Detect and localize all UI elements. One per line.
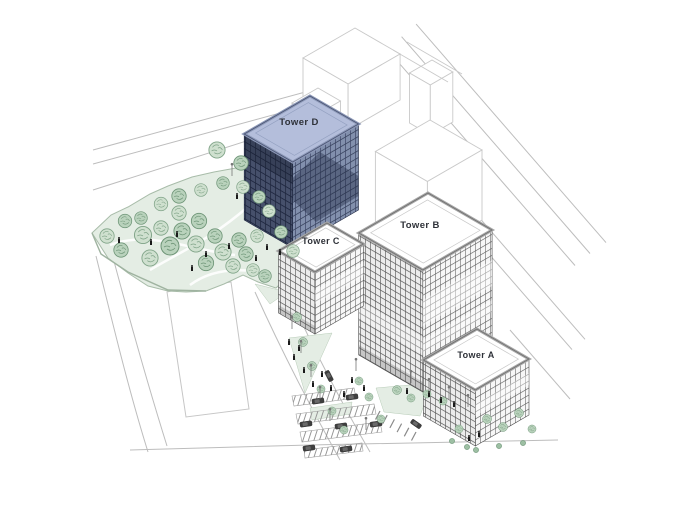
person — [351, 377, 353, 383]
tree — [209, 142, 225, 158]
car — [410, 419, 422, 429]
building-footprint-outline — [167, 276, 249, 417]
tree — [114, 243, 128, 257]
tower-c-label: Tower C — [302, 236, 340, 246]
tree — [259, 270, 272, 283]
tree — [172, 206, 186, 220]
tree — [287, 245, 300, 258]
tree — [142, 250, 158, 266]
bush — [520, 440, 525, 445]
tree — [100, 229, 114, 243]
tree — [455, 425, 463, 433]
person — [150, 239, 152, 245]
tree — [208, 229, 222, 243]
person — [293, 354, 295, 360]
bush — [496, 443, 501, 448]
tower-d: Tower D — [244, 96, 358, 248]
person — [321, 371, 323, 377]
site-plan-svg: Tower D Tower B Tower C Tower A — [0, 0, 696, 519]
person — [266, 244, 268, 250]
person — [406, 388, 408, 394]
person — [428, 391, 430, 397]
street-lamp — [355, 358, 358, 371]
site-plan-illustration: Tower D Tower B Tower C Tower A — [0, 0, 696, 519]
tree — [226, 259, 240, 273]
tree — [195, 184, 208, 197]
person — [363, 385, 365, 391]
tree — [217, 177, 230, 190]
tower-d-label: Tower D — [279, 117, 319, 128]
tree — [365, 393, 373, 401]
tree — [340, 426, 348, 434]
car — [324, 370, 333, 382]
person — [330, 385, 332, 391]
tree — [377, 415, 385, 423]
tree — [393, 386, 402, 395]
tree — [407, 394, 415, 402]
bush — [464, 444, 469, 449]
person — [298, 345, 300, 351]
person — [255, 255, 257, 261]
tree — [161, 237, 179, 255]
tree — [515, 409, 524, 418]
tree — [154, 197, 168, 211]
tree — [239, 247, 253, 261]
tree — [154, 221, 168, 235]
person — [468, 435, 470, 441]
tree — [483, 415, 492, 424]
tree — [253, 191, 266, 204]
tree — [134, 226, 151, 243]
tower-a-label: Tower A — [457, 350, 494, 360]
person — [228, 243, 230, 249]
person — [205, 251, 207, 257]
road-line — [96, 256, 148, 452]
person — [343, 391, 345, 397]
tree — [263, 205, 276, 218]
tree — [234, 156, 248, 170]
tree — [355, 377, 363, 385]
tree — [118, 214, 132, 228]
bush — [473, 447, 478, 452]
tree — [293, 313, 302, 322]
bush — [449, 438, 454, 443]
tree — [499, 423, 508, 432]
street-lamp — [291, 316, 294, 329]
tree — [232, 233, 246, 247]
person — [478, 431, 480, 437]
tree — [188, 236, 204, 252]
tower-b-label: Tower B — [400, 220, 440, 231]
tree — [135, 212, 148, 225]
tree — [237, 181, 250, 194]
tree — [328, 407, 336, 415]
tree — [251, 230, 264, 243]
person — [279, 249, 281, 255]
person — [176, 231, 178, 237]
tree — [317, 385, 325, 393]
tree — [172, 189, 186, 203]
tree — [191, 213, 206, 228]
tree — [299, 338, 308, 347]
tree — [198, 255, 213, 270]
tree — [275, 226, 288, 239]
person — [312, 381, 314, 387]
person — [440, 397, 442, 403]
person — [191, 265, 193, 271]
tree — [528, 425, 536, 433]
person — [288, 339, 290, 345]
person — [453, 401, 455, 407]
person — [118, 237, 120, 243]
person — [303, 367, 305, 373]
person — [236, 193, 238, 199]
tree — [247, 264, 260, 277]
